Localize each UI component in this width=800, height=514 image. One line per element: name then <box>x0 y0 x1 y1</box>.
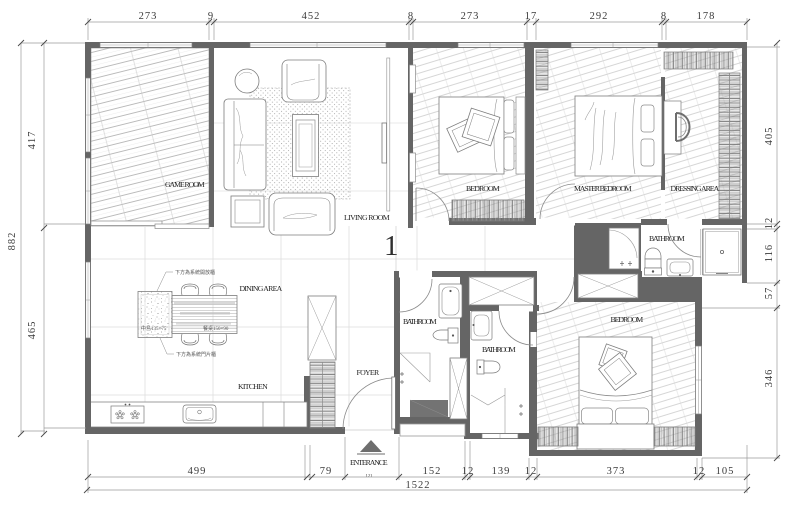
svg-text:346: 346 <box>764 369 775 388</box>
svg-text:499: 499 <box>188 466 207 477</box>
svg-text:中島135×75: 中島135×75 <box>141 325 167 332</box>
svg-text:152: 152 <box>423 466 442 477</box>
svg-text:下方為系統開放櫃: 下方為系統開放櫃 <box>175 269 215 276</box>
svg-text:465: 465 <box>27 321 38 340</box>
svg-text:DRESSING AREA: DRESSING AREA <box>671 184 720 193</box>
svg-text:292: 292 <box>590 11 609 22</box>
svg-text:405: 405 <box>764 127 775 146</box>
svg-text:373: 373 <box>607 466 626 477</box>
svg-text:餐桌150×90: 餐桌150×90 <box>203 325 229 332</box>
svg-text:ENTERANCE: ENTERANCE <box>350 458 388 467</box>
svg-text:9: 9 <box>208 11 214 22</box>
svg-text:FOYER: FOYER <box>357 368 380 377</box>
svg-text:BEDROOM: BEDROOM <box>611 315 644 324</box>
svg-text:8: 8 <box>408 11 414 22</box>
svg-text:882: 882 <box>7 232 18 251</box>
svg-text:273: 273 <box>139 11 158 22</box>
svg-text:8: 8 <box>661 11 667 22</box>
svg-text:DINING AREA: DINING AREA <box>240 284 283 293</box>
svg-text:116: 116 <box>764 244 775 262</box>
svg-text:KITCHEN: KITCHEN <box>238 382 268 391</box>
svg-text:178: 178 <box>697 11 716 22</box>
svg-text:1522: 1522 <box>406 480 431 491</box>
svg-text:17: 17 <box>525 11 538 22</box>
svg-text:12: 12 <box>693 466 706 477</box>
svg-text:273: 273 <box>461 11 480 22</box>
svg-text:LIVING ROOM: LIVING ROOM <box>344 213 390 222</box>
svg-text:105: 105 <box>716 466 735 477</box>
svg-text:BATHROOM: BATHROOM <box>482 345 516 354</box>
svg-text:12: 12 <box>764 217 775 230</box>
svg-text:1: 1 <box>384 230 399 262</box>
svg-text:417: 417 <box>27 131 38 150</box>
svg-text:139: 139 <box>492 466 511 477</box>
svg-text:MASTER BEDROOM: MASTER BEDROOM <box>574 184 632 193</box>
svg-text:BATHROOM: BATHROOM <box>649 234 685 243</box>
svg-text:12: 12 <box>525 466 538 477</box>
svg-text:BEDROOM: BEDROOM <box>466 184 500 193</box>
svg-text:57: 57 <box>764 287 775 300</box>
svg-text:79: 79 <box>320 466 333 477</box>
svg-text:GAME ROOM: GAME ROOM <box>165 180 205 189</box>
svg-text:12: 12 <box>462 466 475 477</box>
svg-text:452: 452 <box>302 11 321 22</box>
svg-text:BATHROOM: BATHROOM <box>403 317 437 326</box>
svg-text:下方為系統門片櫃: 下方為系統門片櫃 <box>176 351 216 358</box>
